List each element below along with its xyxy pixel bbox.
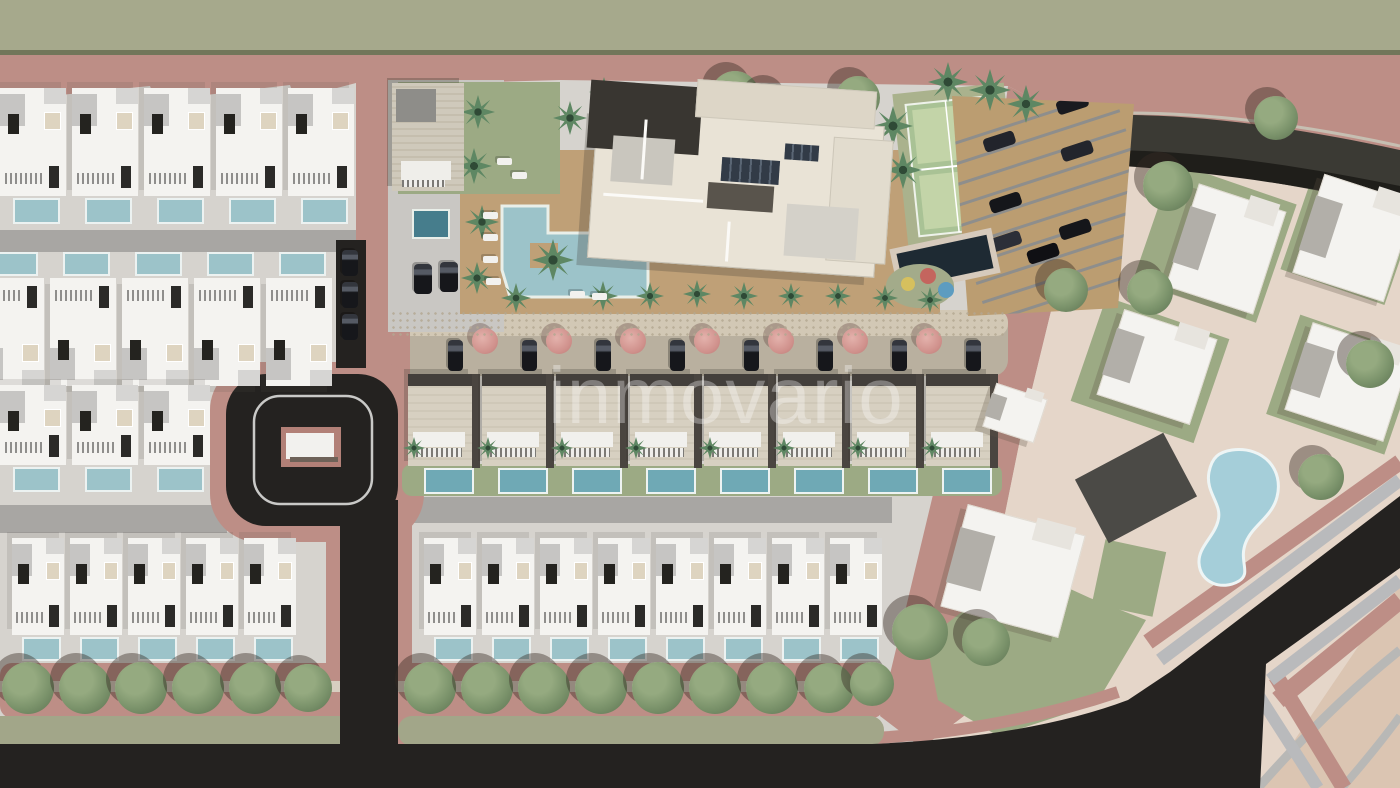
villa-door — [193, 166, 203, 188]
private-pool — [85, 198, 132, 224]
solar-panel — [8, 411, 19, 431]
villa-door — [243, 286, 253, 308]
private-pool — [724, 637, 763, 661]
villa-canopy — [516, 562, 529, 580]
villa-roof-section — [220, 538, 238, 554]
villa-roof — [830, 538, 882, 635]
solar-panel — [836, 564, 847, 584]
palm-tree — [553, 101, 587, 135]
apartment-building — [573, 71, 899, 307]
villa-roof-section — [188, 385, 210, 401]
villa-roof — [144, 88, 210, 196]
villa-door — [315, 286, 325, 308]
townhouse-railing — [786, 448, 832, 457]
villa-door — [635, 605, 645, 627]
private-pool — [608, 637, 647, 661]
solar-panel — [58, 340, 69, 360]
party-wall — [916, 374, 924, 468]
villa-roof — [244, 538, 296, 635]
villa-roof — [482, 538, 534, 635]
solar-panel — [778, 564, 789, 584]
villa-with-pool — [144, 385, 216, 492]
tree — [1127, 269, 1173, 315]
solar-panel — [134, 564, 145, 584]
villa-railing — [190, 612, 219, 623]
villa-with-pool — [0, 385, 72, 492]
model-home-roof — [396, 89, 436, 121]
villa-door — [577, 605, 587, 627]
tree — [284, 664, 332, 712]
villa-roof-section — [116, 88, 138, 104]
garage-roof — [1290, 342, 1334, 399]
villa-canopy — [864, 562, 877, 580]
solar-panel — [274, 340, 285, 360]
villa-roof — [424, 538, 476, 635]
tree — [172, 662, 224, 714]
villa-roof — [714, 538, 766, 635]
villa-canopy — [574, 562, 587, 580]
villa-roof-section — [278, 538, 296, 554]
villa-roof-section — [166, 370, 188, 386]
townhouse-terrace — [487, 432, 539, 447]
villa-with-pool — [540, 538, 598, 661]
tree — [850, 662, 894, 706]
villa-door — [49, 435, 59, 457]
private-pool — [157, 198, 204, 224]
townhouse-railing — [490, 448, 536, 457]
villa-with-pool — [772, 538, 830, 661]
palm-tree — [532, 239, 574, 281]
villa-roof — [0, 278, 44, 386]
villa-canopy — [22, 344, 39, 362]
solar-panel — [130, 340, 141, 360]
townhouse-railing — [934, 448, 980, 457]
parked-car — [440, 262, 458, 292]
palm-tree — [403, 437, 425, 459]
villa-railing — [55, 290, 91, 301]
townhouse-pool — [868, 468, 918, 494]
garage-roof — [1172, 206, 1216, 270]
solar-panel — [152, 411, 163, 431]
villa-with-pool — [144, 88, 216, 224]
villa-roof-section — [44, 385, 66, 401]
private-pool — [63, 252, 110, 276]
villa-door — [265, 166, 275, 188]
tree — [892, 604, 948, 660]
villa-railing — [127, 290, 163, 301]
tree — [59, 662, 111, 714]
private-pool — [229, 198, 276, 224]
private-pool — [207, 252, 254, 276]
sun-lounger — [486, 278, 501, 285]
villa-roof — [72, 385, 138, 465]
villa-railing — [221, 173, 257, 184]
townhouse-pool — [794, 468, 844, 494]
palm-tree — [1007, 85, 1045, 123]
tree — [1254, 96, 1298, 140]
roof-step — [1174, 322, 1211, 350]
villa-roof-section — [260, 88, 282, 104]
villa-railing — [16, 612, 45, 623]
villa-with-pool — [482, 538, 540, 661]
palm-tree — [928, 62, 968, 102]
townhouse-pool — [424, 468, 474, 494]
villa-roof-section — [94, 370, 116, 386]
villa-with-pool — [244, 538, 302, 661]
villa-roof — [266, 278, 332, 386]
villa-roof — [540, 538, 592, 635]
villa-canopy — [46, 562, 59, 580]
solar-panels — [721, 157, 781, 185]
villa-railing — [271, 290, 307, 301]
villa-railing — [660, 612, 689, 623]
villa-roof-section — [864, 538, 882, 554]
villa-canopy — [162, 562, 175, 580]
villa-roof-section — [310, 370, 332, 386]
tree — [115, 662, 167, 714]
tree — [461, 662, 513, 714]
villa-railing — [5, 173, 41, 184]
villa-canopy — [632, 562, 645, 580]
villa-with-pool — [216, 88, 288, 224]
townhouse — [482, 374, 556, 492]
garage-roof — [1102, 328, 1144, 383]
private-pool — [0, 252, 38, 276]
villa-with-pool — [194, 252, 266, 386]
private-pool — [22, 637, 61, 661]
palm-tree — [477, 437, 499, 459]
solar-panel — [192, 564, 203, 584]
private-pool — [434, 637, 473, 661]
villa-railing — [149, 442, 185, 453]
tree — [1044, 268, 1088, 312]
solar-panel — [296, 114, 307, 134]
sun-lounger — [512, 172, 527, 179]
tree — [2, 662, 54, 714]
villa-with-pool — [12, 538, 70, 661]
villa-railing — [77, 173, 113, 184]
villa-roof-section — [22, 370, 44, 386]
villa-with-pool — [72, 88, 144, 224]
villa-canopy — [44, 409, 61, 427]
watermark: inmovario — [548, 350, 904, 442]
villa-railing — [834, 612, 863, 623]
neighborhood-house — [1096, 309, 1217, 425]
tree — [746, 662, 798, 714]
townhouse-railing — [638, 448, 684, 457]
villa-roof-section — [458, 538, 476, 554]
villa-railing — [5, 442, 41, 453]
villa-roof — [0, 88, 66, 196]
sun-lounger — [570, 291, 585, 298]
villa-door — [27, 286, 37, 308]
villa-roof-section — [806, 538, 824, 554]
townhouse-railing — [860, 448, 906, 457]
villa-with-pool — [186, 538, 244, 661]
villa-roof-section — [44, 88, 66, 104]
neighborhood-house — [1292, 174, 1400, 303]
villa-with-pool — [598, 538, 656, 661]
parked-car — [342, 314, 358, 340]
villa-door — [461, 605, 471, 627]
solar-panel — [720, 564, 731, 584]
private-pool — [782, 637, 821, 661]
palm-tree — [969, 69, 1011, 111]
parked-car — [522, 340, 537, 371]
private-pool — [492, 637, 531, 661]
villa-canopy — [94, 344, 111, 362]
villa-with-pool — [0, 88, 72, 224]
villa-with-pool — [830, 538, 888, 661]
private-pool — [254, 637, 293, 661]
tree — [689, 662, 741, 714]
villa-railing — [199, 290, 235, 301]
villa-railing — [718, 612, 747, 623]
model-home-terrace — [401, 161, 451, 180]
villa-roof-section — [332, 88, 354, 104]
townhouse-railing — [416, 448, 462, 457]
villa-door — [49, 166, 59, 188]
sun-lounger — [483, 256, 498, 263]
roof-step — [1372, 186, 1400, 217]
villa-door — [171, 286, 181, 308]
townhouse-terrace — [413, 432, 465, 447]
villa-railing — [544, 612, 573, 623]
villa-door — [193, 435, 203, 457]
townhouse-terrace — [931, 432, 983, 447]
villa-door — [337, 166, 347, 188]
townhouse-pool — [942, 468, 992, 494]
villa-roof — [288, 88, 354, 196]
roof-step — [1031, 517, 1076, 550]
parked-car — [342, 282, 358, 308]
villa-railing — [428, 612, 457, 623]
villa-canopy — [260, 112, 277, 130]
site-plan-render: inmovario — [0, 0, 1400, 788]
villa-door — [121, 166, 131, 188]
villa-railing — [132, 612, 161, 623]
villa-roof-section — [748, 538, 766, 554]
private-pool — [138, 637, 177, 661]
villa-door — [121, 435, 131, 457]
villa-roof-section — [46, 538, 64, 554]
villa-canopy — [44, 112, 61, 130]
solar-panel — [202, 340, 213, 360]
private-pool — [135, 252, 182, 276]
tree — [1298, 454, 1344, 500]
private-pool — [13, 467, 60, 492]
villa-canopy — [188, 409, 205, 427]
villa-roof — [70, 538, 122, 635]
solar-panel — [8, 114, 19, 134]
villa-canopy — [166, 344, 183, 362]
villa-roof-section — [116, 385, 138, 401]
villa-door — [223, 605, 233, 627]
villa-railing — [0, 290, 20, 301]
villa-with-pool — [0, 252, 50, 386]
palm-tree — [461, 95, 495, 129]
villa-roof — [0, 385, 66, 465]
villa-railing — [149, 173, 185, 184]
townhouse-pool — [720, 468, 770, 494]
solar-panel — [662, 564, 673, 584]
villa-canopy — [458, 562, 471, 580]
villa-with-pool — [50, 252, 122, 386]
private-pool — [666, 637, 705, 661]
parked-car — [448, 340, 463, 371]
sun-lounger — [483, 234, 498, 241]
tree — [1143, 161, 1193, 211]
roof-step — [1244, 195, 1280, 227]
villa-roof-section — [574, 538, 592, 554]
villa-roof-section — [188, 88, 210, 104]
model-home — [392, 83, 464, 191]
solar-panels — [784, 143, 819, 161]
villa-canopy — [104, 562, 117, 580]
palm-tree — [501, 283, 531, 313]
solar-panel — [80, 411, 91, 431]
sun-lounger — [497, 158, 512, 165]
villa-canopy — [806, 562, 819, 580]
villa-roof-section — [0, 348, 3, 380]
roof-terrace — [784, 204, 859, 261]
townhouse — [926, 374, 1000, 492]
parked-car — [966, 340, 981, 371]
garage-roof — [1299, 196, 1343, 258]
villa-door — [809, 605, 819, 627]
villa-roof — [50, 278, 116, 386]
villa-door — [519, 605, 529, 627]
villa-canopy — [748, 562, 761, 580]
tree — [518, 662, 570, 714]
solar-panel — [488, 564, 499, 584]
tree — [962, 618, 1010, 666]
roof-step — [1025, 388, 1045, 403]
villa-with-pool — [122, 252, 194, 386]
party-wall — [472, 374, 480, 468]
model-home-railing — [402, 180, 445, 187]
solar-panel — [76, 564, 87, 584]
villa-roof — [144, 385, 210, 465]
private-pool — [279, 252, 326, 276]
townhouse-dark-roof — [926, 374, 990, 386]
solar-panel — [18, 564, 29, 584]
villa-roof — [12, 538, 64, 635]
villa-railing — [602, 612, 631, 623]
tree — [404, 662, 456, 714]
villa-canopy — [220, 562, 233, 580]
villa-with-pool — [288, 88, 360, 224]
sun-lounger — [483, 212, 498, 219]
villa-with-pool — [424, 538, 482, 661]
villa-roof-section — [104, 538, 122, 554]
villa-roof — [72, 88, 138, 196]
villa-door — [867, 605, 877, 627]
villa-canopy — [690, 562, 703, 580]
villa-door — [165, 605, 175, 627]
villa-canopy — [188, 112, 205, 130]
villa-roof-section — [238, 370, 260, 386]
villa-roof — [216, 88, 282, 196]
parked-car — [342, 250, 358, 276]
solar-panel — [250, 564, 261, 584]
garage-roof — [946, 527, 996, 592]
promenade-paving-texture — [390, 310, 1008, 336]
villa-roof-section — [632, 538, 650, 554]
private-pool — [80, 637, 119, 661]
villa-door — [751, 605, 761, 627]
villa-roof — [186, 538, 238, 635]
private-pool — [550, 637, 589, 661]
villa-railing — [776, 612, 805, 623]
townhouse-pool — [498, 468, 548, 494]
villa-roof — [598, 538, 650, 635]
townhouse-railing — [712, 448, 758, 457]
villa-roof-section — [162, 538, 180, 554]
villa-with-pool — [266, 252, 338, 386]
villa-door — [693, 605, 703, 627]
neighborhood-house — [940, 504, 1085, 638]
villa-railing — [293, 173, 329, 184]
private-pool — [840, 637, 879, 661]
villa-with-pool — [714, 538, 772, 661]
villa-with-pool — [72, 385, 144, 492]
townhouse-dark-roof — [482, 374, 546, 386]
townhouse-railing — [564, 448, 610, 457]
villa-canopy — [332, 112, 349, 130]
private-pool — [85, 467, 132, 492]
villa-door — [281, 605, 291, 627]
tree — [1346, 340, 1394, 388]
townhouse-dark-roof — [408, 374, 472, 386]
villa-roof — [772, 538, 824, 635]
tree — [575, 662, 627, 714]
villa-with-pool — [70, 538, 128, 661]
villa-roof — [128, 538, 180, 635]
villa-canopy — [116, 112, 133, 130]
villa-canopy — [310, 344, 327, 362]
villa-door — [99, 286, 109, 308]
private-pool — [157, 467, 204, 492]
villa-canopy — [278, 562, 291, 580]
solar-panel — [604, 564, 615, 584]
villa-railing — [248, 612, 277, 623]
villa-with-pool — [656, 538, 714, 661]
villa-door — [49, 605, 59, 627]
villa-roof — [656, 538, 708, 635]
sun-lounger — [592, 293, 607, 300]
villa-roof — [122, 278, 188, 386]
villa-roof-section — [516, 538, 534, 554]
tree — [804, 663, 854, 713]
solar-panel — [430, 564, 441, 584]
townhouse-pool — [646, 468, 696, 494]
villa-roof-section — [690, 538, 708, 554]
villa-canopy — [238, 344, 255, 362]
tree — [229, 662, 281, 714]
townhouse-pool — [572, 468, 622, 494]
villa-with-pool — [128, 538, 186, 661]
villa-railing — [486, 612, 515, 623]
private-pool — [196, 637, 235, 661]
palm-tree — [921, 437, 943, 459]
villa-canopy — [116, 409, 133, 427]
parked-car — [414, 264, 432, 294]
private-pool — [13, 198, 60, 224]
villa-railing — [77, 442, 113, 453]
solar-panel — [546, 564, 557, 584]
townhouse — [408, 374, 482, 492]
